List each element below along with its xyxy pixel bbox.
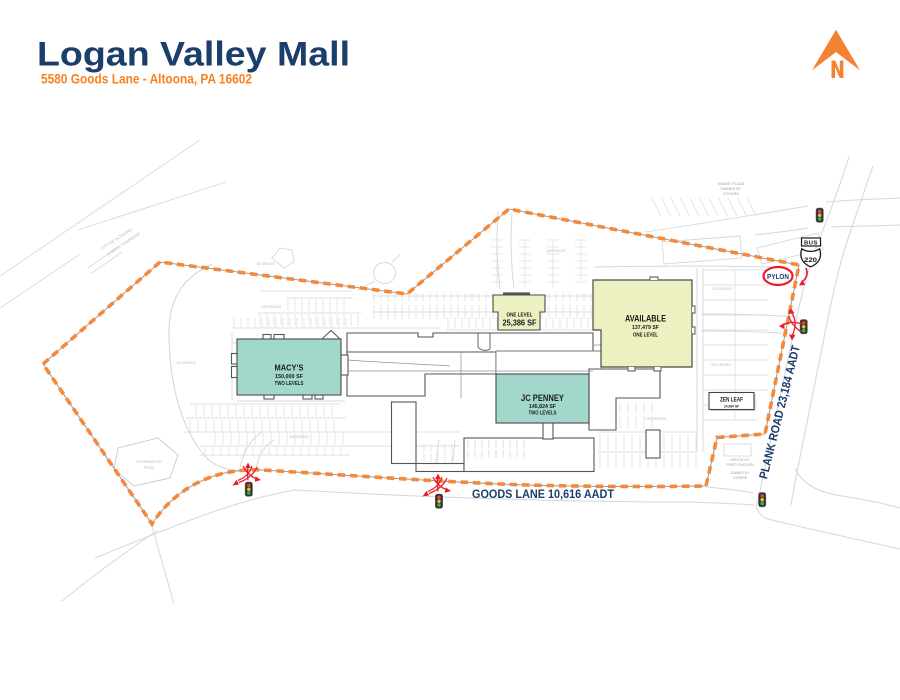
svg-text:PYLON: PYLON — [767, 272, 789, 281]
svg-text:140 SPACES: 140 SPACES — [261, 305, 282, 309]
svg-text:MACY’S: MACY’S — [275, 364, 304, 373]
svg-text:118 SPACES: 118 SPACES — [546, 249, 567, 253]
svg-text:OWNED BY: OWNED BY — [730, 471, 750, 475]
svg-text:145,824 SF: 145,824 SF — [529, 404, 557, 410]
svg-text:GOODS LANE 10,616 AADT: GOODS LANE 10,616 AADT — [472, 487, 614, 501]
svg-text:284 SPACES: 284 SPACES — [711, 363, 732, 367]
svg-text:JC PENNEY: JC PENNEY — [521, 393, 564, 403]
svg-text:OWNED BY: OWNED BY — [721, 187, 742, 191]
svg-text:5580 Goods Lane - Altoona, PA: 5580 Goods Lane - Altoona, PA 16602 — [41, 72, 252, 87]
svg-text:FRIED CHICKEN: FRIED CHICKEN — [726, 463, 754, 467]
svg-text:STORMWATER: STORMWATER — [136, 460, 162, 464]
svg-text:220: 220 — [804, 257, 817, 264]
svg-text:TWO LEVELS: TWO LEVELS — [529, 411, 557, 417]
svg-text:24,084 SF: 24,084 SF — [724, 404, 740, 408]
svg-text:TWO LEVELS: TWO LEVELS — [275, 381, 304, 387]
svg-text:OTHERS: OTHERS — [733, 476, 748, 480]
svg-text:210 SPACES: 210 SPACES — [712, 287, 733, 291]
svg-text:KENTUCKY: KENTUCKY — [730, 458, 750, 462]
svg-text:ZEN LEAF: ZEN LEAF — [720, 397, 743, 403]
svg-text:119 SPACES: 119 SPACES — [176, 361, 197, 365]
svg-text:OTHERS: OTHERS — [723, 192, 739, 196]
svg-text:416 SPACES: 416 SPACES — [289, 435, 310, 439]
svg-text:BUS: BUS — [804, 241, 818, 247]
svg-text:AVAILABLE: AVAILABLE — [625, 314, 666, 325]
svg-text:137,479 SF: 137,479 SF — [632, 325, 660, 331]
svg-text:25,386 SF: 25,386 SF — [503, 319, 537, 328]
svg-text:150,000 SF: 150,000 SF — [275, 374, 304, 380]
svg-text:ONE LEVEL: ONE LEVEL — [633, 333, 658, 339]
svg-text:80 SPACES: 80 SPACES — [257, 262, 276, 266]
svg-text:191 SPACES: 191 SPACES — [646, 417, 667, 421]
svg-text:POND: POND — [144, 466, 155, 470]
svg-text:Logan Valley Mall: Logan Valley Mall — [37, 36, 350, 74]
svg-text:KMART PLAZA: KMART PLAZA — [718, 182, 745, 186]
